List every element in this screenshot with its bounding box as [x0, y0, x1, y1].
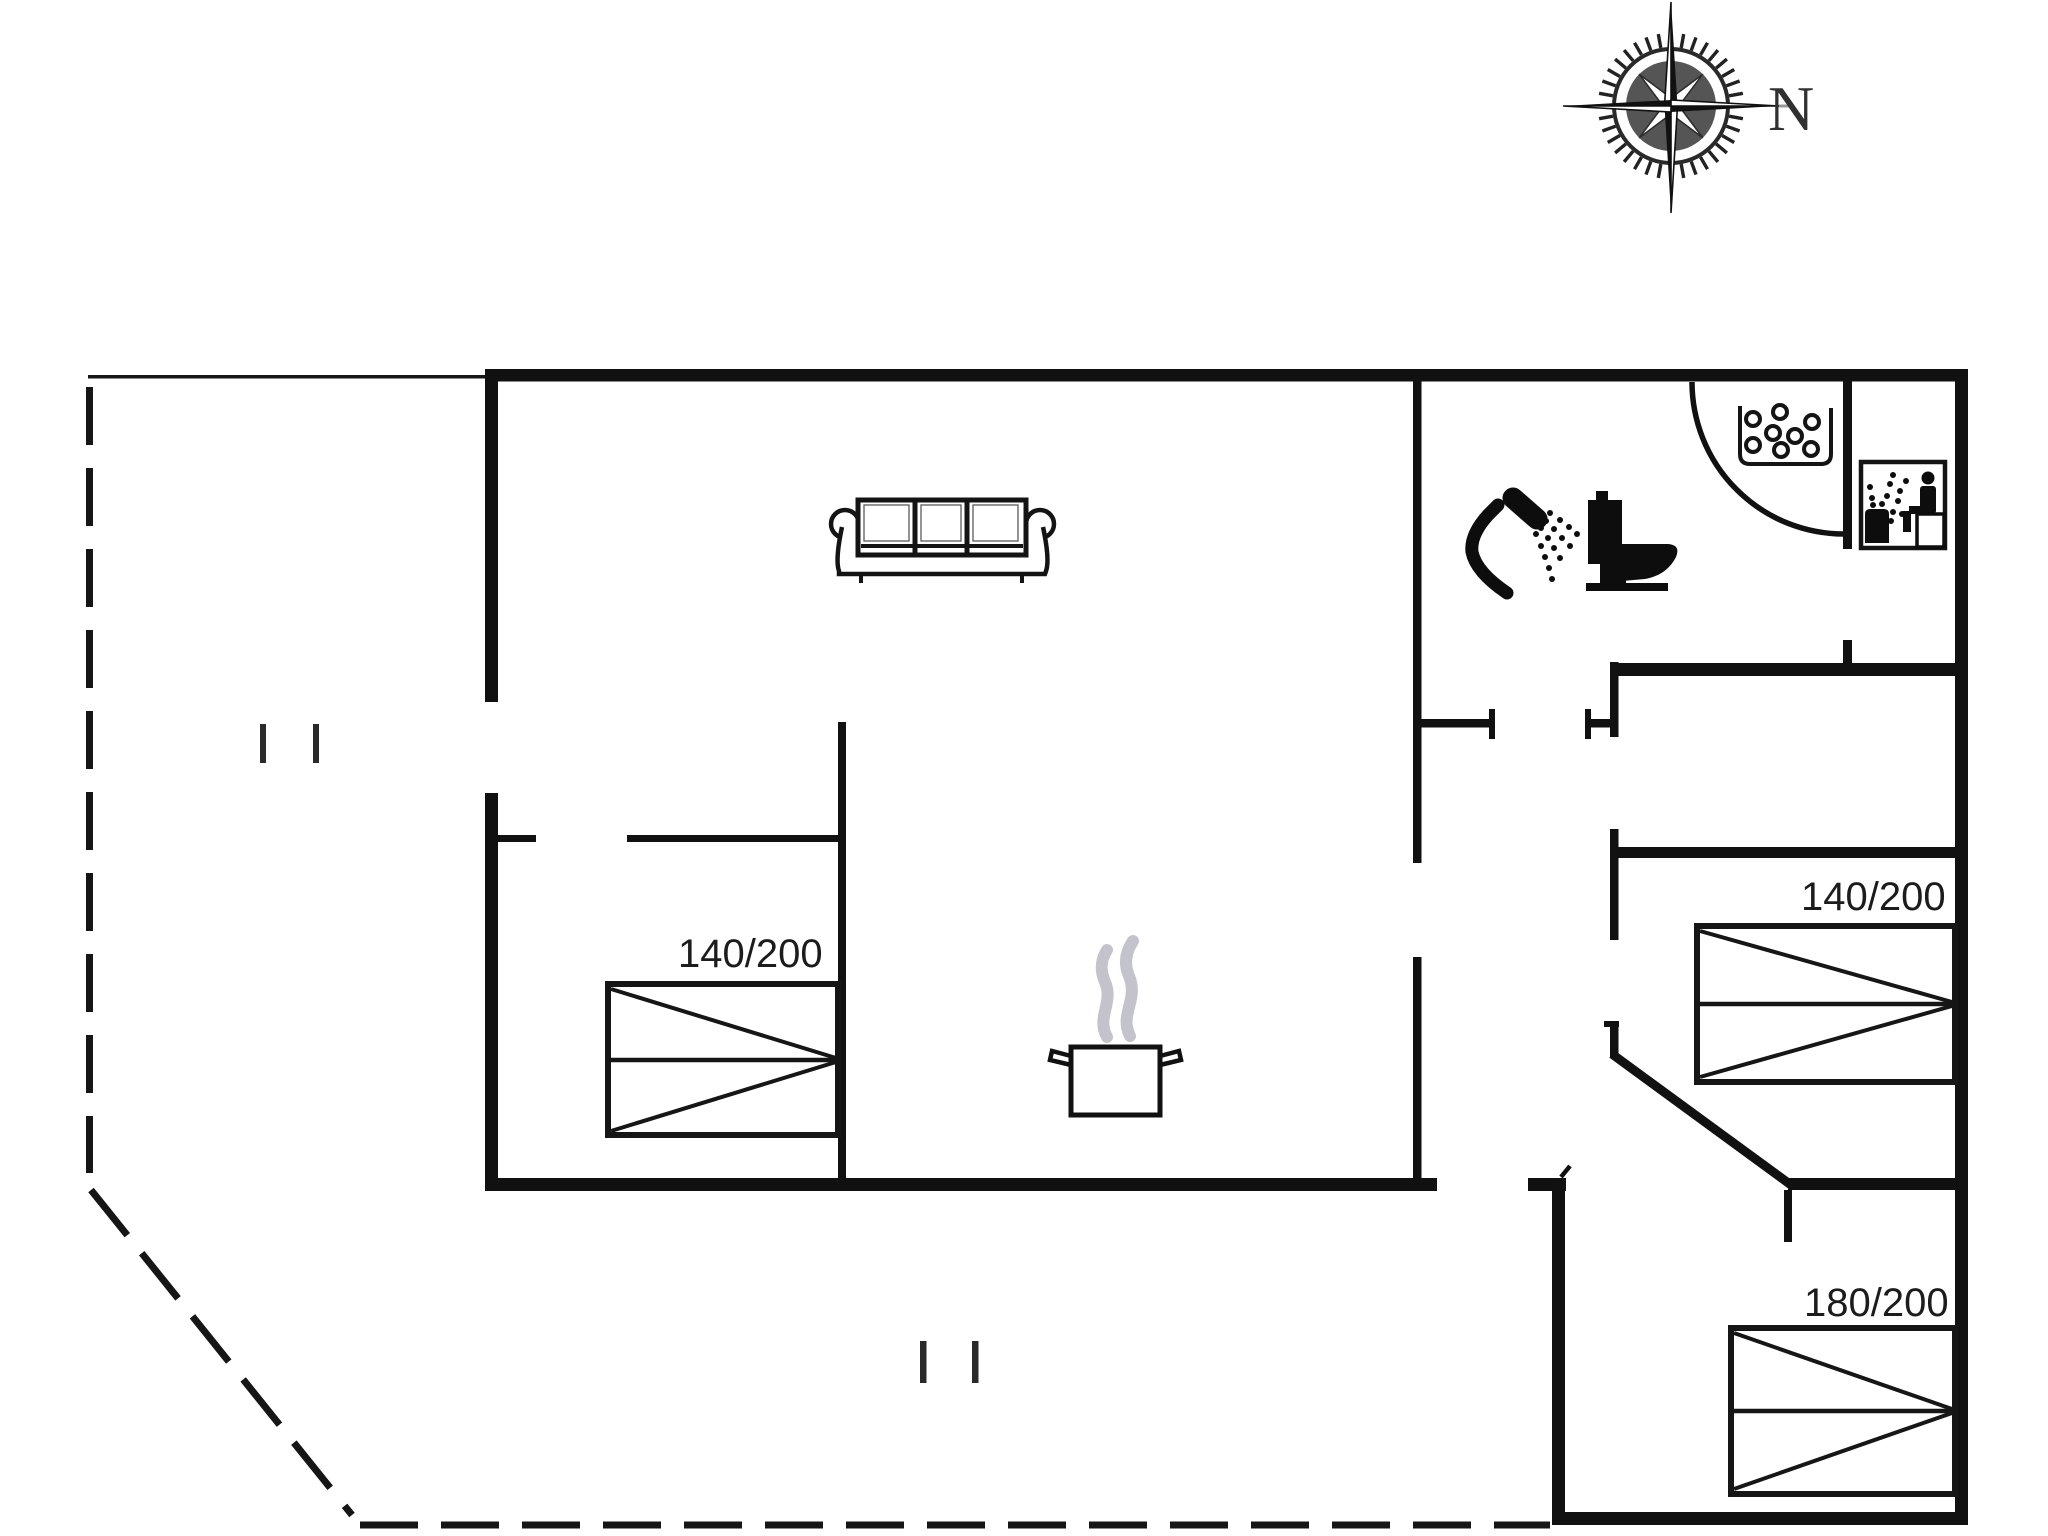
svg-text:140/200: 140/200 [1801, 875, 1946, 919]
svg-text:180/200: 180/200 [1804, 1281, 1949, 1325]
svg-text:N: N [1768, 73, 1814, 144]
svg-text:140/200: 140/200 [678, 932, 823, 976]
